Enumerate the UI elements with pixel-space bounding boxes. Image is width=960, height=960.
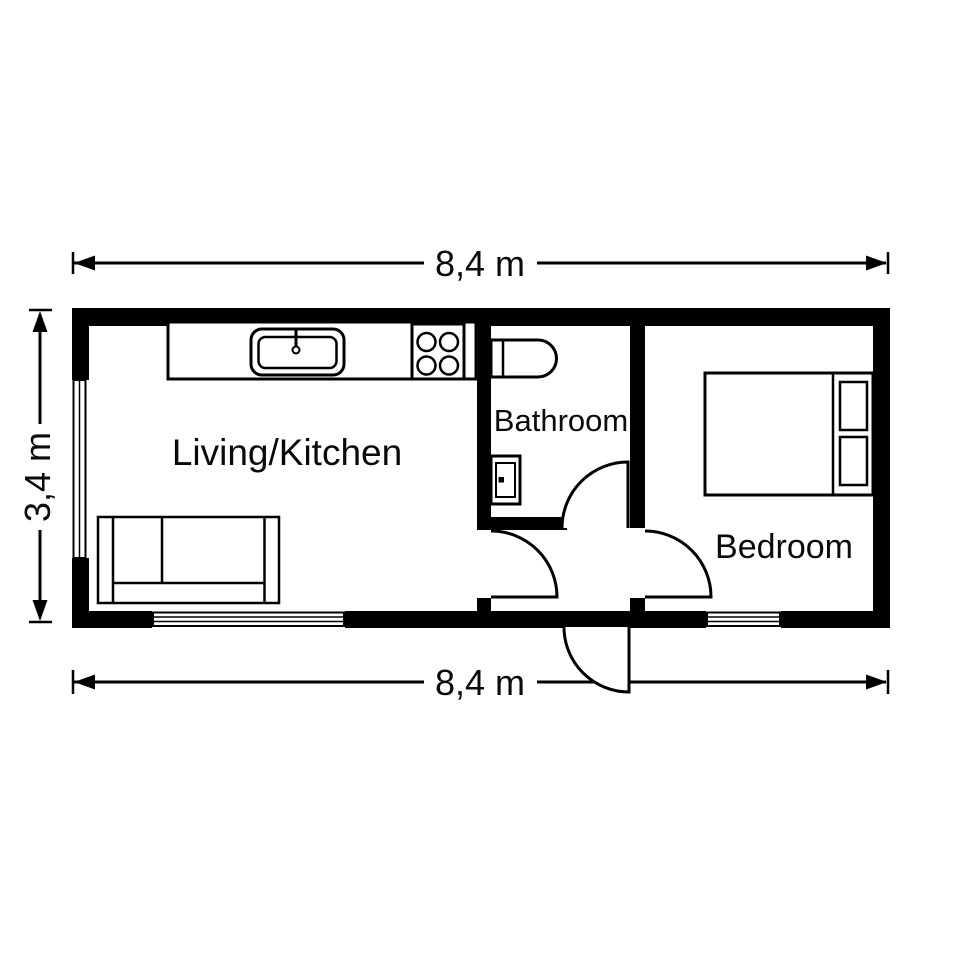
bedroom-wall-stub — [630, 598, 645, 611]
living-kitchen-label: Living/Kitchen — [172, 432, 402, 473]
bathroom-left-wall — [477, 326, 491, 530]
dimension-left: 3,4 m — [17, 310, 58, 622]
pillow — [840, 382, 867, 430]
floor-plan-svg: 8,4 m 8,4 m 3,4 m Living/Kitchen Bathroo… — [0, 0, 960, 960]
bathroom-bottom-wall — [477, 517, 567, 530]
dimension-bottom: 8,4 m — [73, 662, 888, 703]
bottom-bedroom-window — [706, 609, 781, 629]
bathroom-label: Bathroom — [494, 403, 628, 438]
sofa — [98, 517, 279, 603]
double-bed — [705, 373, 873, 495]
toilet — [491, 340, 557, 377]
bedroom-wall — [630, 326, 645, 528]
washbasin — [491, 456, 520, 504]
dimension-top-label: 8,4 m — [435, 243, 525, 284]
dimension-bottom-label: 8,4 m — [435, 662, 525, 703]
pillow — [840, 437, 867, 485]
bottom-living-window — [152, 609, 345, 629]
dimension-left-label: 3,4 m — [17, 432, 58, 522]
dimension-top: 8,4 m — [73, 243, 888, 284]
floor-plan: 8,4 m 8,4 m 3,4 m Living/Kitchen Bathroo… — [0, 0, 960, 960]
left-wall-window — [70, 380, 91, 558]
living-wall-stub — [477, 598, 491, 611]
stove — [412, 324, 464, 379]
kitchen-sink — [251, 329, 344, 375]
bedroom-label: Bedroom — [715, 528, 853, 566]
